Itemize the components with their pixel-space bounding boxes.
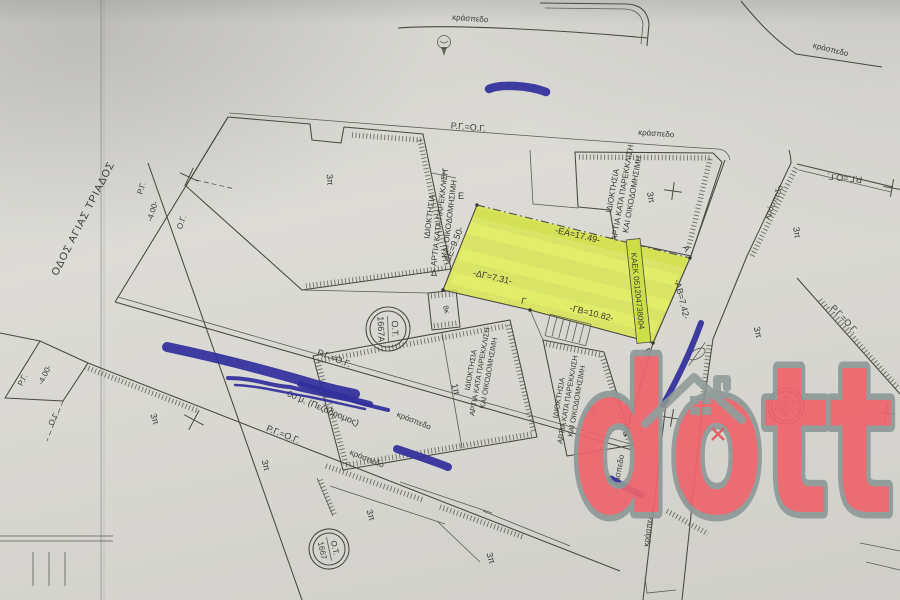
alignment-label-4: Ρ.Γ.=Ο.Γ. bbox=[265, 423, 301, 445]
floors3-5: 3π bbox=[260, 459, 273, 472]
tree-symbol bbox=[438, 36, 451, 57]
plan-drawing: ΚΑΕΚ 051204738004 -ΕΑ=17.49- -ΑΒ=7.42- -… bbox=[0, 0, 900, 600]
badge-1667-number: 1667 bbox=[316, 541, 329, 561]
watermark-text: dott bbox=[572, 323, 894, 561]
scan-fold-lines bbox=[101, 0, 104, 600]
og-label-1: Ο.Γ. bbox=[175, 214, 188, 230]
floors3-1: 3π bbox=[325, 174, 336, 186]
aux-8k-label: 8κ bbox=[441, 304, 452, 314]
edge-ab-label: -ΑΒ=7.42- bbox=[672, 278, 692, 320]
title-block-fragment bbox=[0, 536, 113, 586]
vertex-e-label: Ε bbox=[458, 191, 464, 201]
curb-label-5: κράσπεδο bbox=[396, 410, 433, 432]
street-name-label: ΟΔΟΣ ΑΓΙΑΣ ΤΡΙΑΔΟΣ bbox=[49, 160, 117, 278]
badge-1667-prefix: Ο.Τ. bbox=[329, 540, 341, 556]
floors3-6: 3π bbox=[364, 508, 377, 522]
alignment-label-3: Ρ.Γ.=Ο.Γ. bbox=[316, 347, 352, 369]
vertex-d-label: Δ bbox=[431, 268, 437, 278]
badge-1667a-prefix: Ο.Τ. bbox=[390, 320, 401, 337]
alignment-label-2: Ρ.Γ.=Ο.Γ. bbox=[827, 171, 863, 185]
badge-1667a-number: 1667Α bbox=[376, 316, 387, 342]
floors3-3: 3π bbox=[791, 226, 803, 239]
block-badge-1667: Ο.Τ. 1667 bbox=[305, 525, 352, 572]
curb-label-2: κράσπεδο bbox=[812, 41, 850, 59]
floors3-7: 3π bbox=[484, 551, 497, 565]
scanned-cadastral-plan: ΚΑΕΚ 051204738004 -ΕΑ=17.49- -ΑΒ=7.42- -… bbox=[0, 0, 900, 600]
curb-label-1: κράσπεδο bbox=[452, 13, 489, 25]
vertex-a-label: Α bbox=[681, 243, 693, 253]
dim-4m-label-2: -4.00- bbox=[36, 363, 53, 386]
dim-4m-label-1: -4.00- bbox=[145, 200, 160, 223]
rg-label-1: Ρ.Γ. bbox=[135, 181, 147, 195]
rg-label-2: Ρ.Γ. bbox=[16, 372, 29, 387]
og-label-2: Ο.Γ. bbox=[47, 411, 61, 428]
watermark: dott bbox=[572, 323, 894, 561]
alignment-label-1: Ρ.Γ.=Ο.Γ. bbox=[450, 121, 486, 134]
floors3-2: 3π bbox=[645, 191, 657, 204]
property-note-3: ΙΔΙΟΚΤΗΣΙΑ ΑΡΤΙΑ ΚΑΤΑ ΠΑΡΕΚΚΛΙΣΗ ΚΑΙ ΟΙΚ… bbox=[458, 325, 500, 418]
floors1-1: 1π bbox=[450, 383, 463, 396]
curb-label-3: κράσπεδο bbox=[638, 128, 675, 140]
floors3-4: 3π bbox=[148, 412, 161, 426]
